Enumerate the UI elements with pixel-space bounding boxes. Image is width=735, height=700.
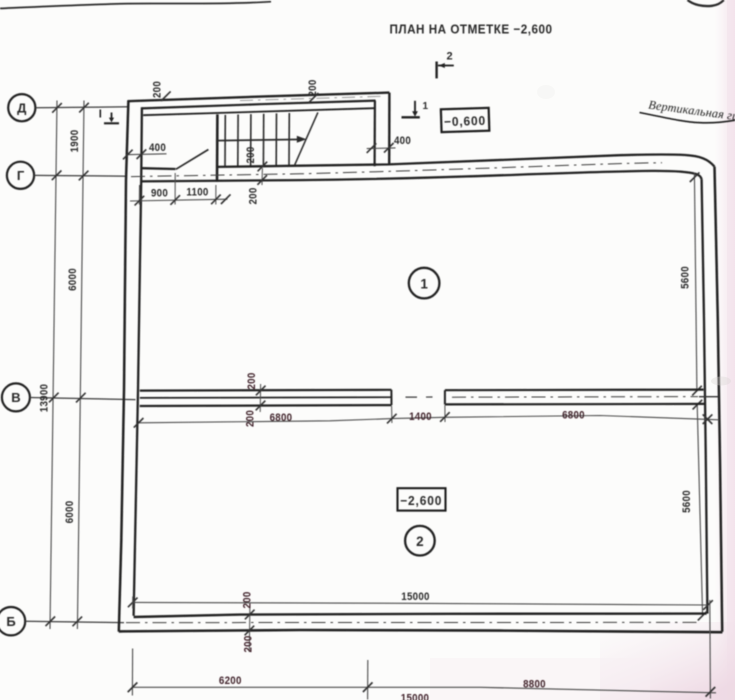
svg-text:−2,600: −2,600 xyxy=(400,494,442,508)
svg-text:2: 2 xyxy=(447,51,453,63)
svg-text:1100: 1100 xyxy=(186,187,208,198)
svg-text:200: 200 xyxy=(246,146,257,163)
svg-text:15000: 15000 xyxy=(401,592,430,603)
svg-text:6000: 6000 xyxy=(65,501,76,524)
svg-text:200: 200 xyxy=(245,410,256,427)
svg-text:Д: Д xyxy=(17,101,27,116)
svg-text:400: 400 xyxy=(149,143,166,154)
svg-text:200: 200 xyxy=(243,635,254,652)
svg-text:−0,600: −0,600 xyxy=(444,114,486,130)
svg-text:ПЛАН НА ОТМЕТКЕ −2,600: ПЛАН НА ОТМЕТКЕ −2,600 xyxy=(390,22,553,37)
svg-text:400: 400 xyxy=(394,135,411,146)
svg-text:200: 200 xyxy=(247,372,258,389)
svg-text:Г: Г xyxy=(17,168,25,183)
svg-text:2: 2 xyxy=(416,534,424,549)
svg-text:5600: 5600 xyxy=(682,490,693,513)
svg-text:200: 200 xyxy=(152,81,163,98)
svg-text:200: 200 xyxy=(308,79,319,96)
svg-text:6000: 6000 xyxy=(68,268,79,291)
svg-text:8800: 8800 xyxy=(523,679,546,690)
svg-text:1: 1 xyxy=(420,276,428,291)
svg-text:900: 900 xyxy=(151,188,168,199)
svg-text:15000: 15000 xyxy=(401,693,430,700)
svg-text:1900: 1900 xyxy=(70,130,81,153)
svg-text:200: 200 xyxy=(248,187,259,204)
svg-text:13900: 13900 xyxy=(39,384,50,413)
svg-text:1400: 1400 xyxy=(409,412,432,423)
svg-text:Б: Б xyxy=(6,614,15,629)
svg-text:5600: 5600 xyxy=(680,266,691,289)
svg-text:200: 200 xyxy=(242,591,253,608)
svg-text:В: В xyxy=(11,390,20,405)
svg-text:6800: 6800 xyxy=(270,413,293,424)
svg-text:6800: 6800 xyxy=(562,410,585,421)
svg-text:1: 1 xyxy=(423,101,429,112)
svg-text:6200: 6200 xyxy=(219,676,242,687)
